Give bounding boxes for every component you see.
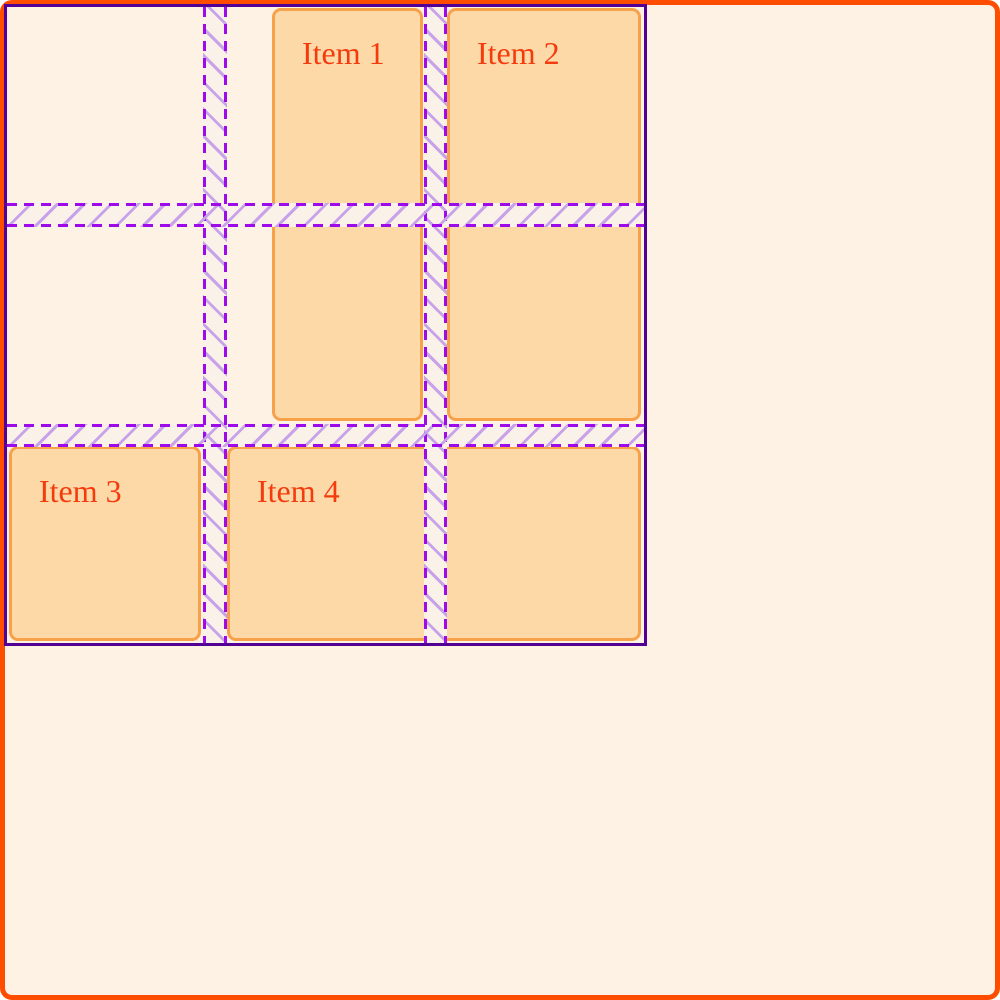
grid-item-3: Item 3 [9,446,201,641]
row-gap-lines-2 [7,424,644,447]
page-root: Item 1 Item 2 Item 3 Item 4 [0,0,1000,1000]
column-gap-lines-1 [203,7,227,644]
column-gap-lines-2 [424,7,447,644]
grid-item-label: Item 4 [257,473,340,509]
row-gap-lines-1 [7,203,644,227]
grid-item-label: Item 1 [302,35,385,71]
grid-item-label: Item 3 [39,473,122,509]
grid-item-label: Item 2 [477,35,560,71]
